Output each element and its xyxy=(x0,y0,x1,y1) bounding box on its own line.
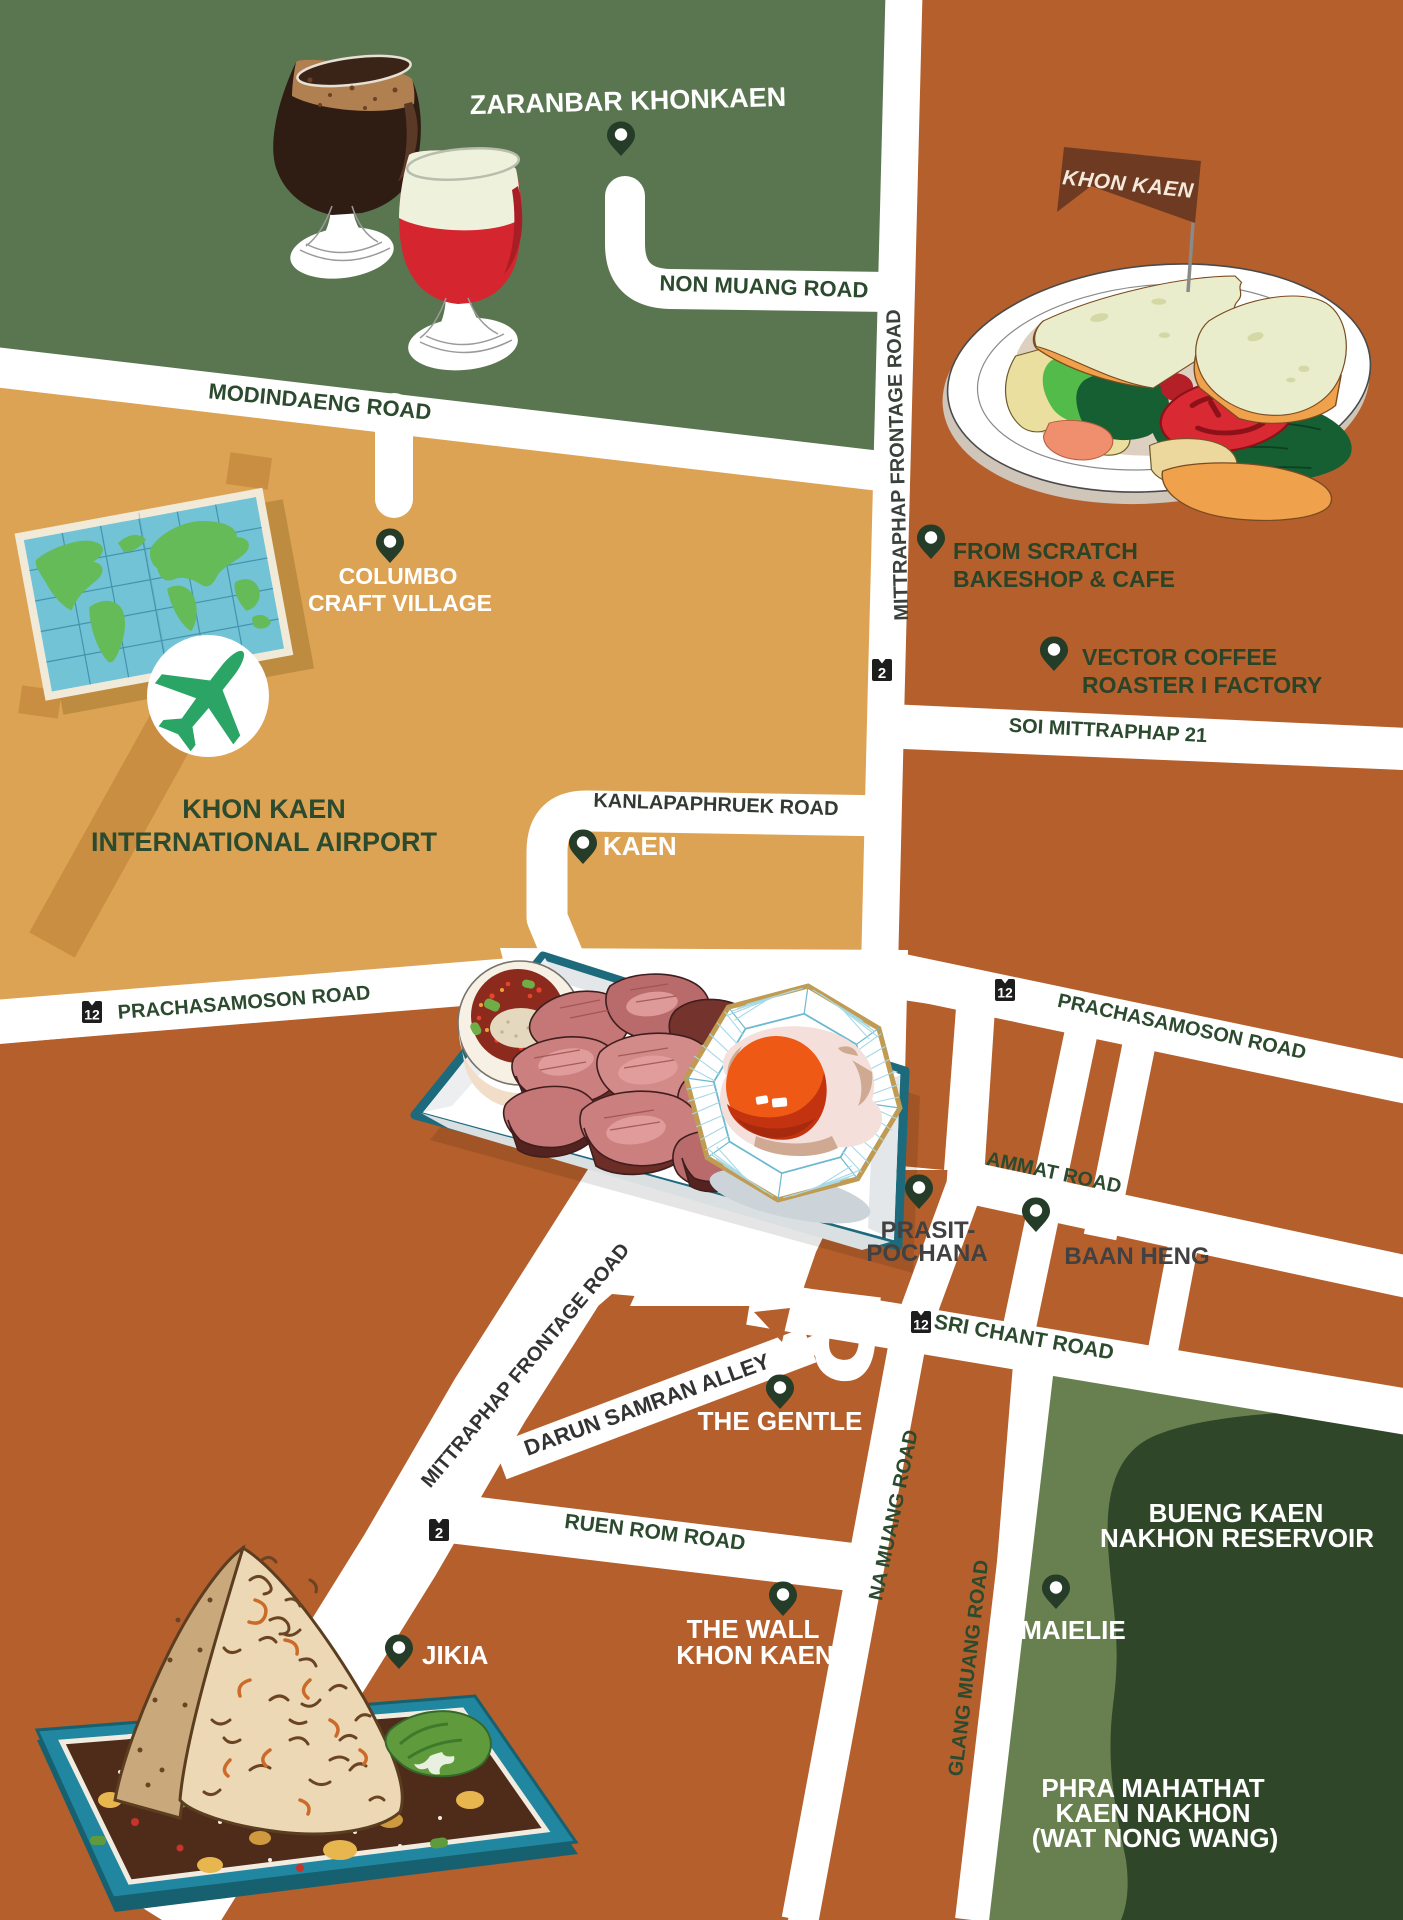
svg-text:BAKESHOP & CAFE: BAKESHOP & CAFE xyxy=(953,566,1175,592)
svg-text:INTERNATIONAL AIRPORT: INTERNATIONAL AIRPORT xyxy=(91,827,437,857)
svg-text:KHON KAEN: KHON KAEN xyxy=(182,794,346,824)
svg-text:NAKHON RESERVOIR: NAKHON RESERVOIR xyxy=(1100,1523,1374,1553)
svg-text:COLUMBO: COLUMBO xyxy=(339,563,458,589)
svg-text:JIKIA: JIKIA xyxy=(422,1640,489,1670)
svg-text:POCHANA: POCHANA xyxy=(866,1240,987,1267)
svg-text:MAIELIE: MAIELIE xyxy=(1020,1615,1125,1645)
svg-text:FROM SCRATCH: FROM SCRATCH xyxy=(953,538,1138,564)
svg-text:R: R xyxy=(739,1272,914,1397)
svg-text:KAEN: KAEN xyxy=(603,831,677,861)
svg-text:BAAN HENG: BAAN HENG xyxy=(1064,1243,1209,1270)
svg-text:KHON KAEN: KHON KAEN xyxy=(676,1640,833,1670)
svg-text:THE GENTLE: THE GENTLE xyxy=(698,1406,863,1436)
svg-text:(WAT NONG WANG): (WAT NONG WANG) xyxy=(1032,1823,1278,1853)
svg-text:CRAFT VILLAGE: CRAFT VILLAGE xyxy=(308,590,492,616)
svg-text:ROASTER I FACTORY: ROASTER I FACTORY xyxy=(1082,672,1322,698)
svg-text:VECTOR COFFEE: VECTOR COFFEE xyxy=(1082,644,1277,670)
